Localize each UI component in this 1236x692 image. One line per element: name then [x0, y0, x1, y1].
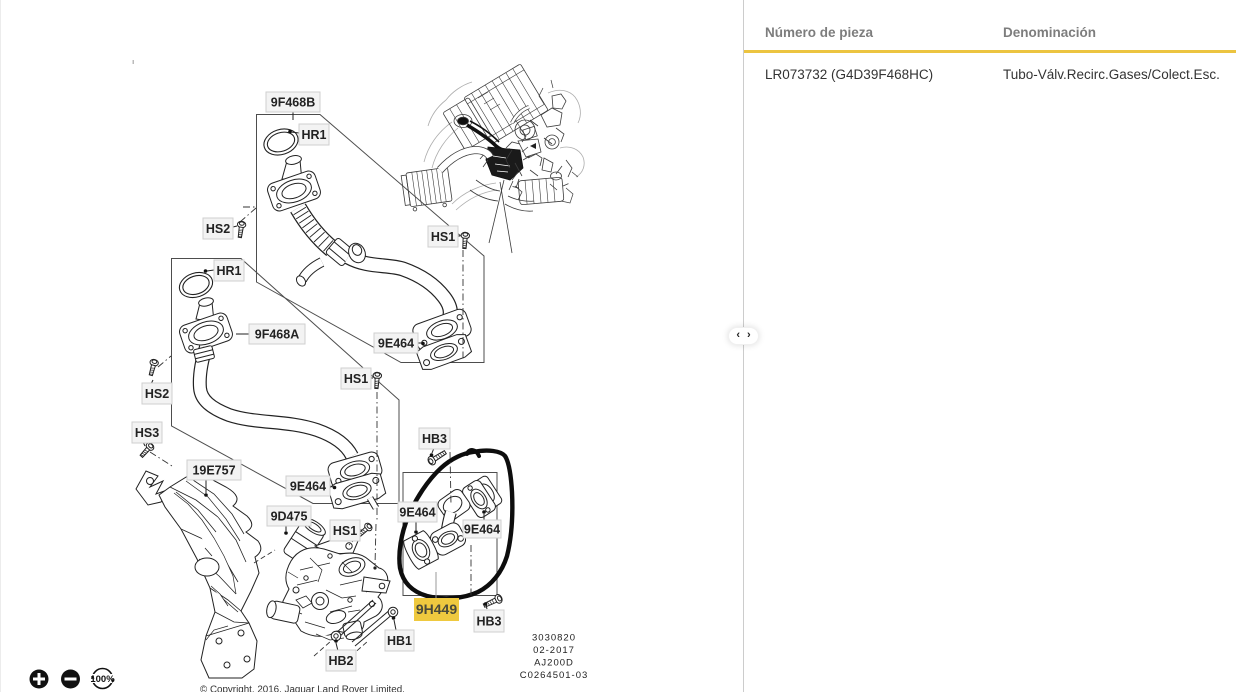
svg-text:9D475: 9D475 [271, 509, 308, 523]
svg-text:9E464: 9E464 [378, 336, 414, 350]
svg-text:HS1: HS1 [431, 230, 455, 244]
svg-text:HS2: HS2 [206, 222, 230, 236]
svg-text:AJ200D: AJ200D [534, 658, 574, 669]
svg-text:19E757: 19E757 [192, 463, 235, 477]
svg-text:C0264501-03: C0264501-03 [520, 670, 589, 681]
svg-text:HB3: HB3 [476, 614, 501, 628]
svg-text:HB2: HB2 [328, 654, 353, 668]
svg-text:9E464: 9E464 [399, 505, 435, 519]
svg-text:HB1: HB1 [387, 634, 412, 648]
svg-text:9H449: 9H449 [416, 601, 457, 617]
svg-text:HS1: HS1 [333, 524, 357, 538]
svg-text:9E464: 9E464 [464, 522, 500, 536]
svg-text:HS1: HS1 [344, 372, 368, 386]
svg-text:HB3: HB3 [422, 432, 447, 446]
svg-text:© Copyright, 2016, Jaguar Land: © Copyright, 2016, Jaguar Land Rover Lim… [200, 685, 405, 692]
svg-text:9F468A: 9F468A [255, 327, 299, 341]
svg-text:HR1: HR1 [216, 264, 241, 278]
svg-text:100%: 100% [90, 674, 115, 685]
svg-text:HS3: HS3 [135, 426, 159, 440]
svg-text:9F468B: 9F468B [271, 95, 315, 109]
svg-text:HR1: HR1 [301, 128, 326, 142]
svg-text:3030820: 3030820 [532, 633, 576, 644]
svg-text:HS2: HS2 [145, 387, 169, 401]
svg-text:02-2017: 02-2017 [533, 645, 575, 656]
svg-text:9E464: 9E464 [290, 479, 326, 493]
